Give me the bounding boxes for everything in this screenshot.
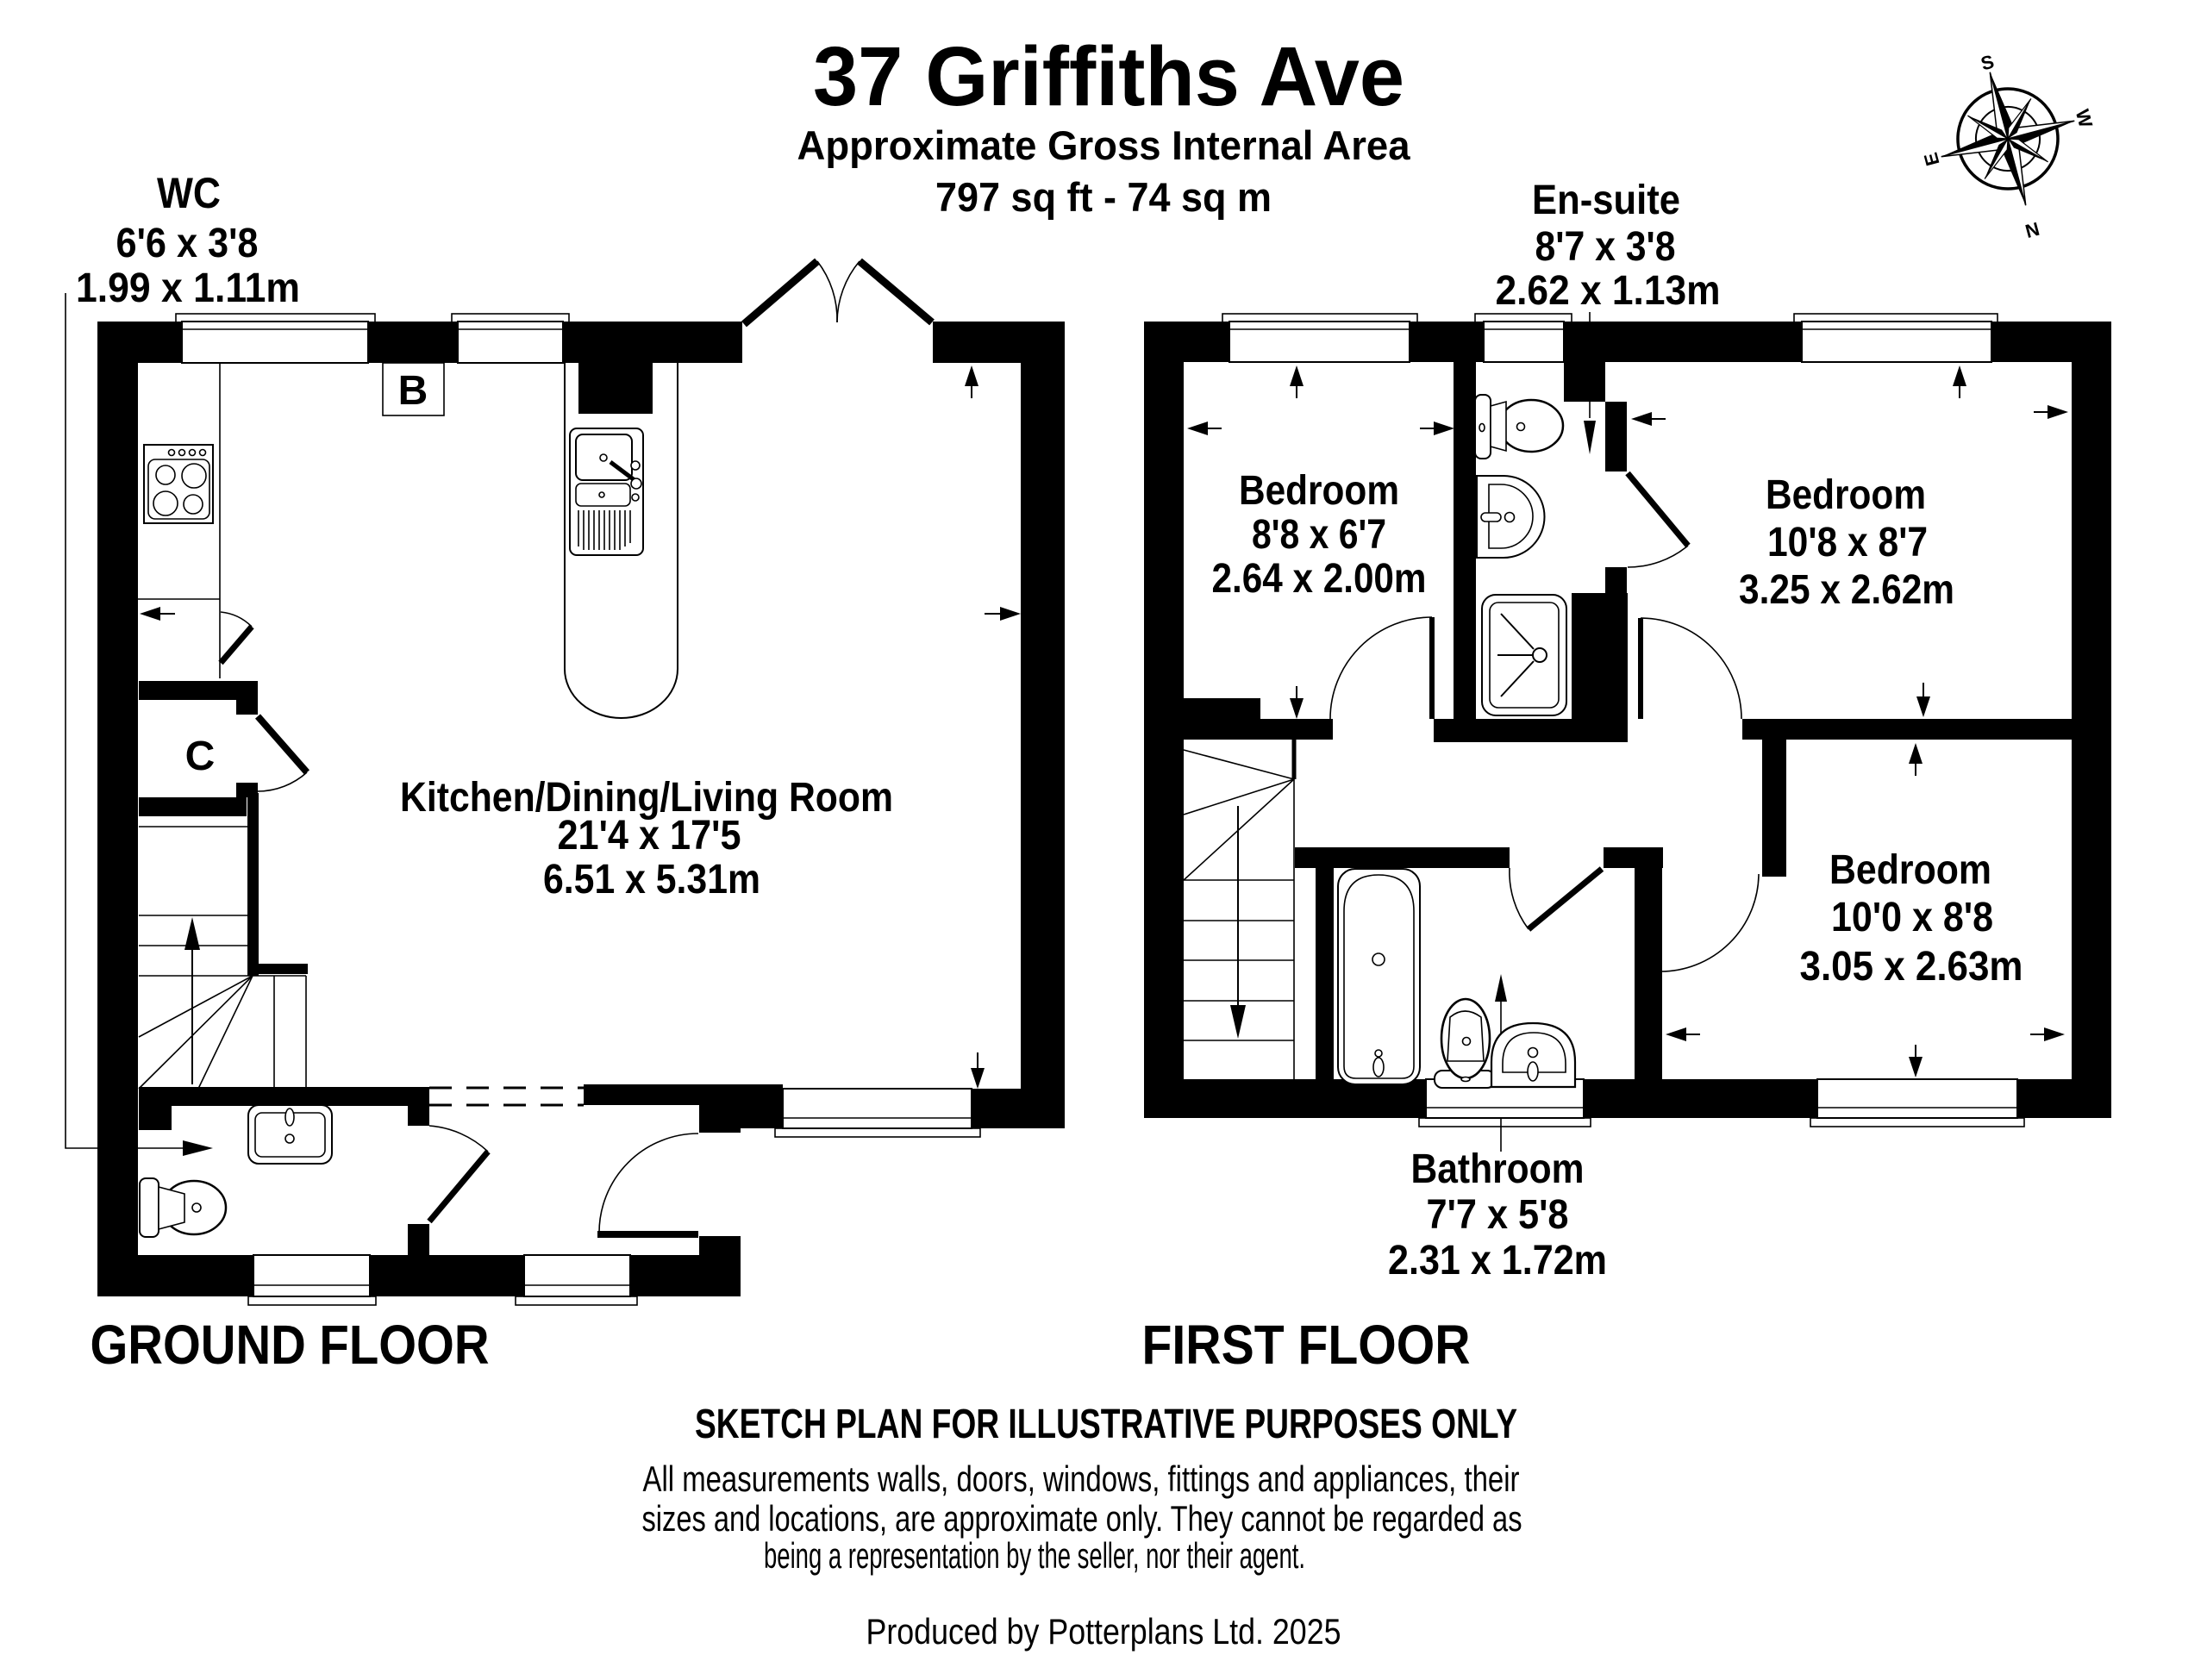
svg-text:being a representation by the: being a representation by the seller, no… bbox=[764, 1535, 1305, 1576]
svg-text:B: B bbox=[398, 368, 428, 414]
svg-text:2.31 x 1.72m: 2.31 x 1.72m bbox=[1388, 1238, 1607, 1283]
svg-text:3.05 x 2.63m: 3.05 x 2.63m bbox=[1800, 944, 2023, 990]
svg-text:2.64 x 2.00m: 2.64 x 2.00m bbox=[1212, 556, 1427, 602]
svg-text:En-suite: En-suite bbox=[1532, 178, 1680, 223]
svg-text:Approximate Gross Internal Are: Approximate Gross Internal Area bbox=[797, 122, 1411, 168]
svg-text:37 Griffiths Ave: 37 Griffiths Ave bbox=[813, 29, 1404, 123]
svg-text:10'0 x 8'8: 10'0 x 8'8 bbox=[1831, 895, 1993, 940]
svg-text:Bathroom: Bathroom bbox=[1411, 1146, 1585, 1192]
svg-text:8'7 x 3'8: 8'7 x 3'8 bbox=[1535, 224, 1676, 270]
svg-text:3.25 x 2.62m: 3.25 x 2.62m bbox=[1739, 567, 1954, 613]
svg-text:10'8 x 8'7: 10'8 x 8'7 bbox=[1767, 520, 1928, 565]
svg-text:Bedroom: Bedroom bbox=[1829, 847, 1991, 893]
svg-text:sizes and locations, are appro: sizes and locations, are approximate onl… bbox=[642, 1498, 1522, 1539]
svg-text:6'6 x 3'8: 6'6 x 3'8 bbox=[116, 221, 259, 266]
svg-text:797 sq ft - 74 sq m: 797 sq ft - 74 sq m bbox=[935, 174, 1272, 220]
svg-text:2.62 x 1.13m: 2.62 x 1.13m bbox=[1496, 268, 1721, 314]
svg-text:7'7 x 5'8: 7'7 x 5'8 bbox=[1427, 1192, 1569, 1238]
svg-text:Produced by Potterplans Ltd. 2: Produced by Potterplans Ltd. 2025 bbox=[866, 1611, 1341, 1652]
svg-text:WC: WC bbox=[157, 169, 221, 217]
svg-text:All measurements walls, doors,: All measurements walls, doors, windows, … bbox=[643, 1458, 1520, 1499]
svg-text:1.99 x 1.11m: 1.99 x 1.11m bbox=[76, 265, 300, 311]
svg-text:SKETCH PLAN FOR ILLUSTRATIVE P: SKETCH PLAN FOR ILLUSTRATIVE PURPOSES ON… bbox=[695, 1402, 1517, 1447]
svg-text:C: C bbox=[185, 734, 216, 779]
svg-text:GROUND FLOOR: GROUND FLOOR bbox=[91, 1314, 490, 1376]
svg-text:Bedroom: Bedroom bbox=[1239, 468, 1399, 514]
svg-text:6.51 x 5.31m: 6.51 x 5.31m bbox=[543, 857, 760, 902]
svg-text:8'8 x 6'7: 8'8 x 6'7 bbox=[1252, 512, 1386, 558]
svg-text:21'4 x 17'5: 21'4 x 17'5 bbox=[558, 813, 741, 859]
svg-text:FIRST FLOOR: FIRST FLOOR bbox=[1142, 1314, 1471, 1376]
svg-text:Bedroom: Bedroom bbox=[1766, 472, 1926, 518]
